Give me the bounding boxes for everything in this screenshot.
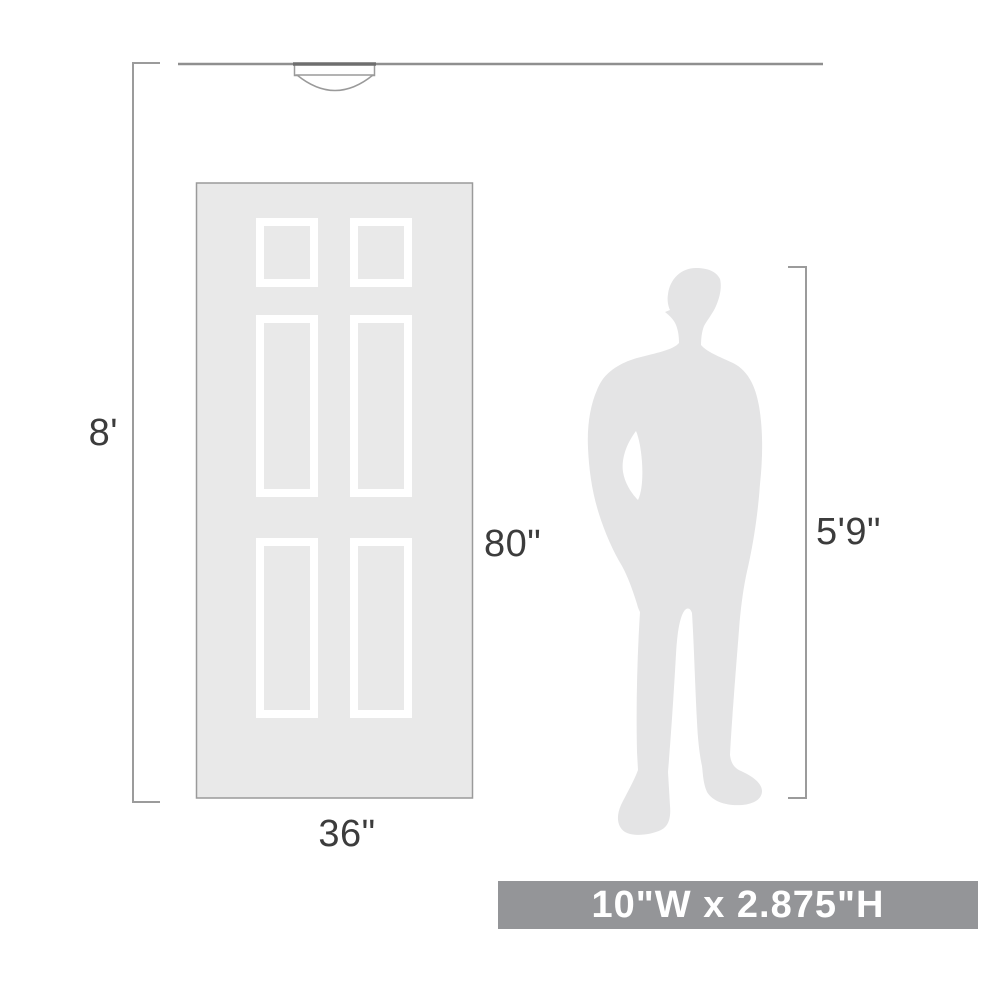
person-height-label: 5'9" (816, 512, 881, 552)
person-body (588, 268, 762, 835)
standing-man-silhouette-icon (588, 268, 762, 835)
fixture-dome-shade (297, 75, 373, 91)
ceiling-height-label: 8' (60, 413, 118, 453)
door-width-label: 36" (295, 814, 399, 854)
door-height-label: 80" (484, 524, 541, 564)
six-panel-door-icon (197, 183, 473, 798)
diagram-graphics (0, 0, 1000, 1000)
door-slab (197, 183, 473, 798)
person-height-dimension-line (788, 267, 806, 798)
fixture-dimensions-text: 10"W x 2.875"H (592, 884, 885, 927)
ceiling-height-dimension-line (133, 63, 160, 802)
flush-mount-ceiling-light-icon (293, 64, 376, 91)
fixture-dimensions-banner: 10"W x 2.875"H (498, 881, 978, 929)
size-comparison-diagram: 8' 80" 36" 5'9" 10"W x 2.875"H (0, 0, 1000, 1000)
